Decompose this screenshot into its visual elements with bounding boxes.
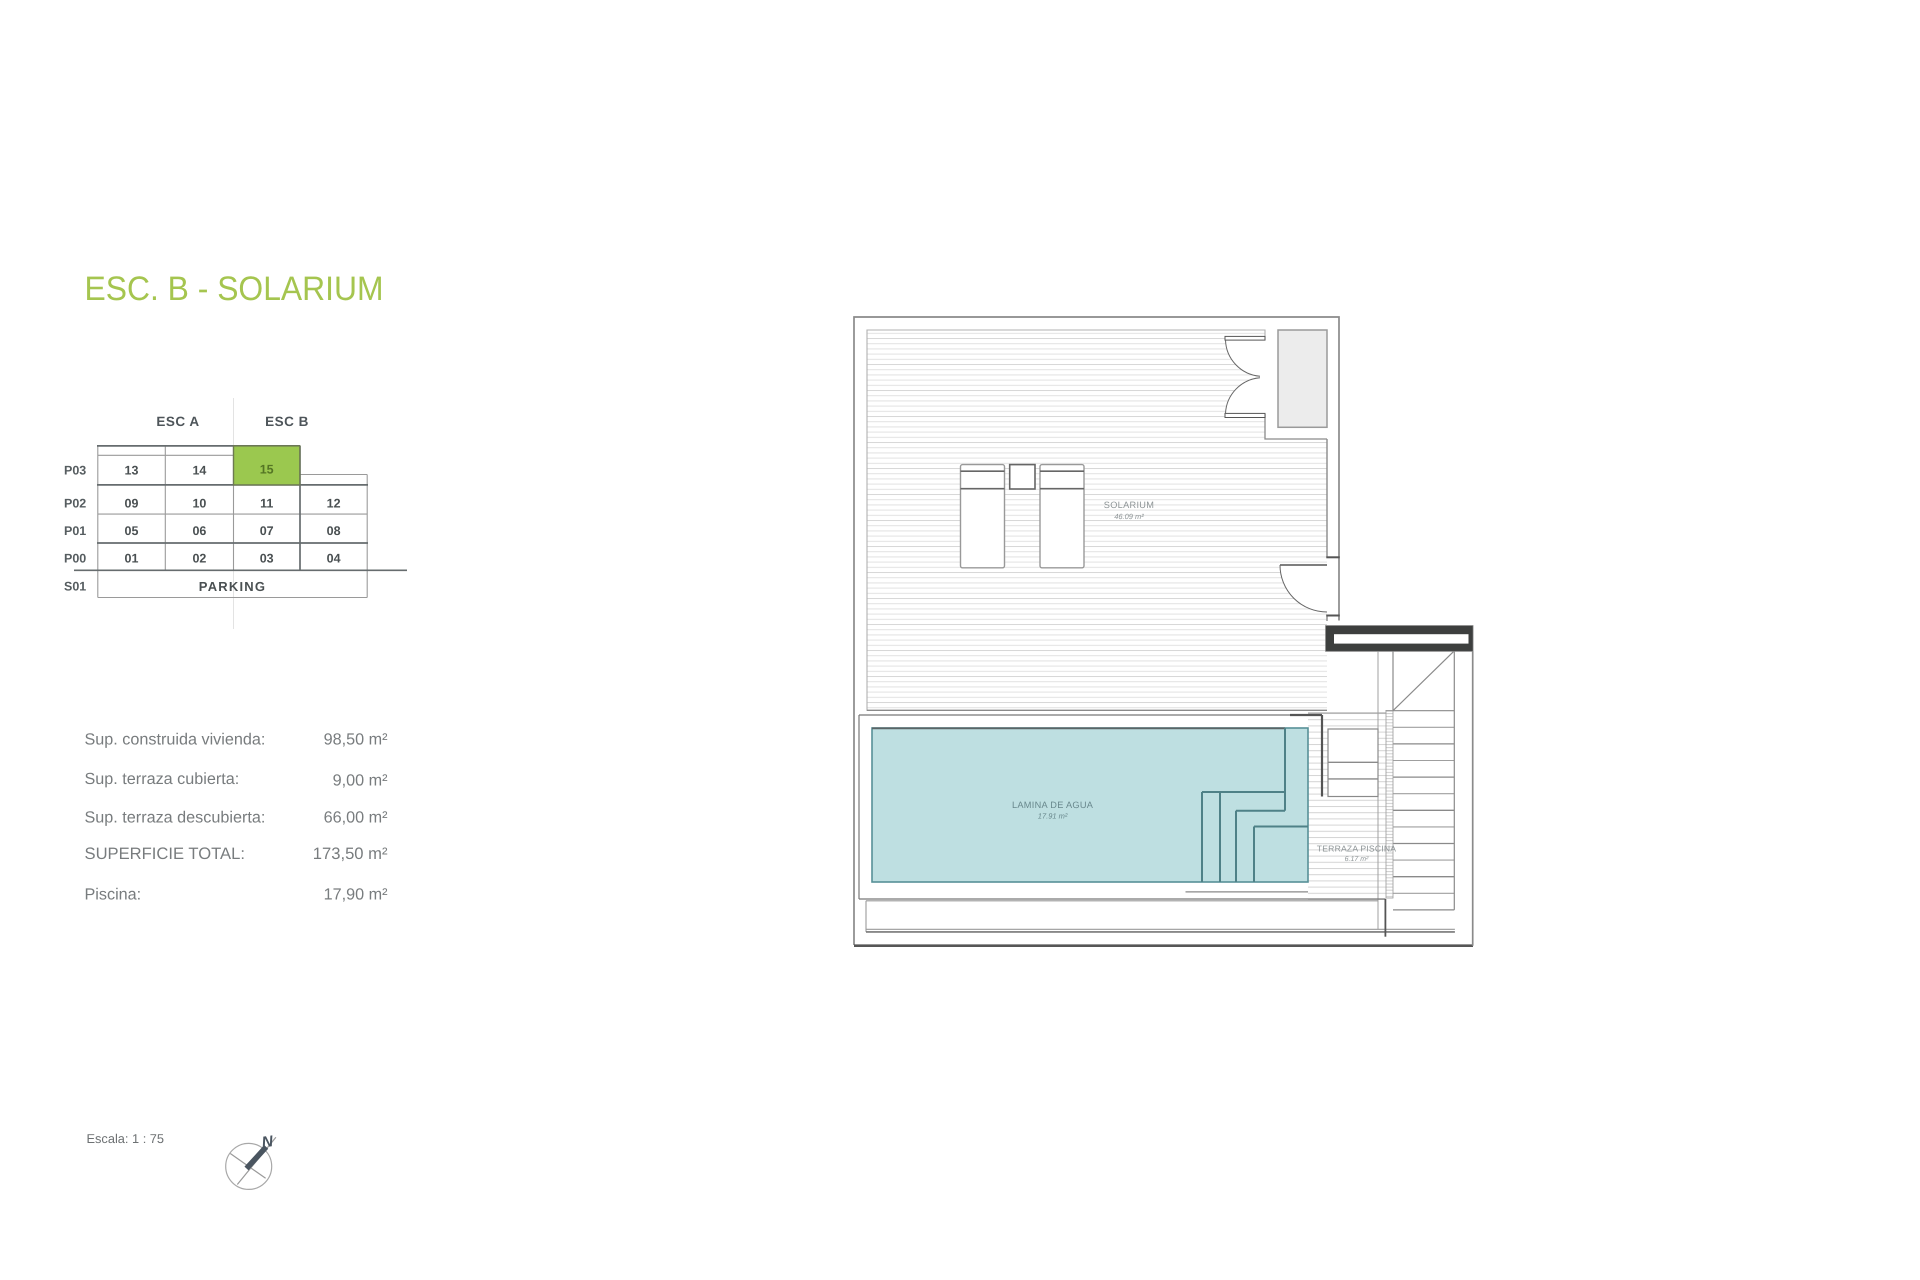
svg-text:Escala: 1 : 75: Escala: 1 : 75 xyxy=(87,1131,165,1146)
svg-text:12: 12 xyxy=(327,497,341,511)
svg-text:SUPERFICIE TOTAL:: SUPERFICIE TOTAL: xyxy=(85,844,245,863)
svg-text:173,50 m²: 173,50 m² xyxy=(313,844,388,863)
svg-text:P02: P02 xyxy=(64,497,86,511)
svg-text:9,00 m²: 9,00 m² xyxy=(333,772,388,790)
svg-text:10: 10 xyxy=(192,497,206,511)
svg-text:PARKING: PARKING xyxy=(199,579,266,594)
svg-text:03: 03 xyxy=(260,552,274,566)
svg-text:01: 01 xyxy=(125,552,139,566)
svg-text:66,00 m²: 66,00 m² xyxy=(324,809,388,827)
svg-text:11: 11 xyxy=(260,497,273,511)
svg-text:08: 08 xyxy=(327,524,341,538)
svg-text:Sup. construida vivienda:: Sup. construida vivienda: xyxy=(85,731,266,749)
svg-text:98,50 m²: 98,50 m² xyxy=(324,731,388,749)
svg-text:17,90 m²: 17,90 m² xyxy=(324,886,388,904)
svg-text:02: 02 xyxy=(192,552,206,566)
svg-text:LAMINA DE AGUA: LAMINA DE AGUA xyxy=(1012,800,1094,810)
svg-text:Sup. terraza cubierta:: Sup. terraza cubierta: xyxy=(85,770,240,788)
svg-text:S01: S01 xyxy=(64,580,86,594)
svg-text:06: 06 xyxy=(192,524,206,538)
svg-text:17.91 m²: 17.91 m² xyxy=(1038,812,1068,821)
svg-text:P01: P01 xyxy=(64,524,86,538)
svg-text:07: 07 xyxy=(260,524,274,538)
svg-text:6.17 m²: 6.17 m² xyxy=(1345,856,1369,863)
svg-text:ESC A: ESC A xyxy=(156,414,199,429)
svg-text:TERRAZA PISCINA: TERRAZA PISCINA xyxy=(1317,844,1396,854)
svg-text:04: 04 xyxy=(327,552,341,566)
svg-text:P03: P03 xyxy=(64,464,86,478)
svg-text:ESC B: ESC B xyxy=(265,414,309,429)
svg-text:Piscina:: Piscina: xyxy=(85,886,142,904)
svg-text:46.09 m²: 46.09 m² xyxy=(1114,512,1144,521)
svg-text:Sup. terraza descubierta:: Sup. terraza descubierta: xyxy=(85,809,266,827)
svg-text:ESC. B - SOLARIUM: ESC. B - SOLARIUM xyxy=(85,270,384,308)
svg-text:14: 14 xyxy=(192,464,206,478)
svg-text:P00: P00 xyxy=(64,552,86,566)
svg-text:15: 15 xyxy=(260,463,274,477)
svg-text:SOLARIUM: SOLARIUM xyxy=(1104,500,1154,510)
svg-text:13: 13 xyxy=(125,464,139,478)
svg-text:05: 05 xyxy=(125,524,139,538)
svg-text:09: 09 xyxy=(125,497,139,511)
